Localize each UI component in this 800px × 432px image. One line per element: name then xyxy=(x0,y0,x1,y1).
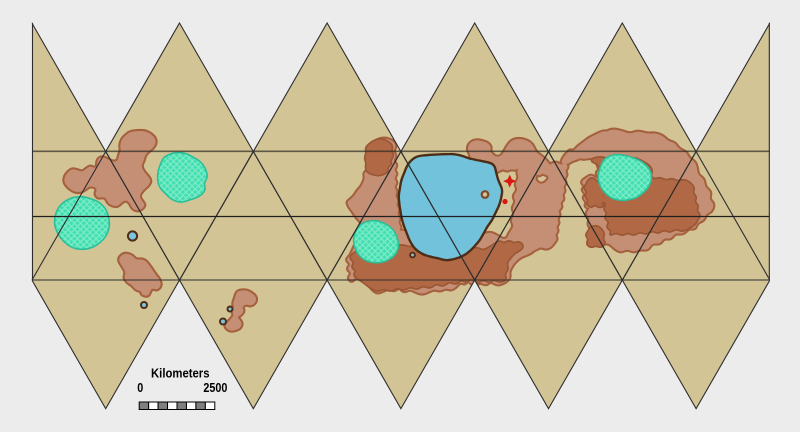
svg-text:Kilometers: Kilometers xyxy=(151,366,210,381)
svg-text:0: 0 xyxy=(137,380,143,395)
svg-text:2500: 2500 xyxy=(203,380,227,395)
